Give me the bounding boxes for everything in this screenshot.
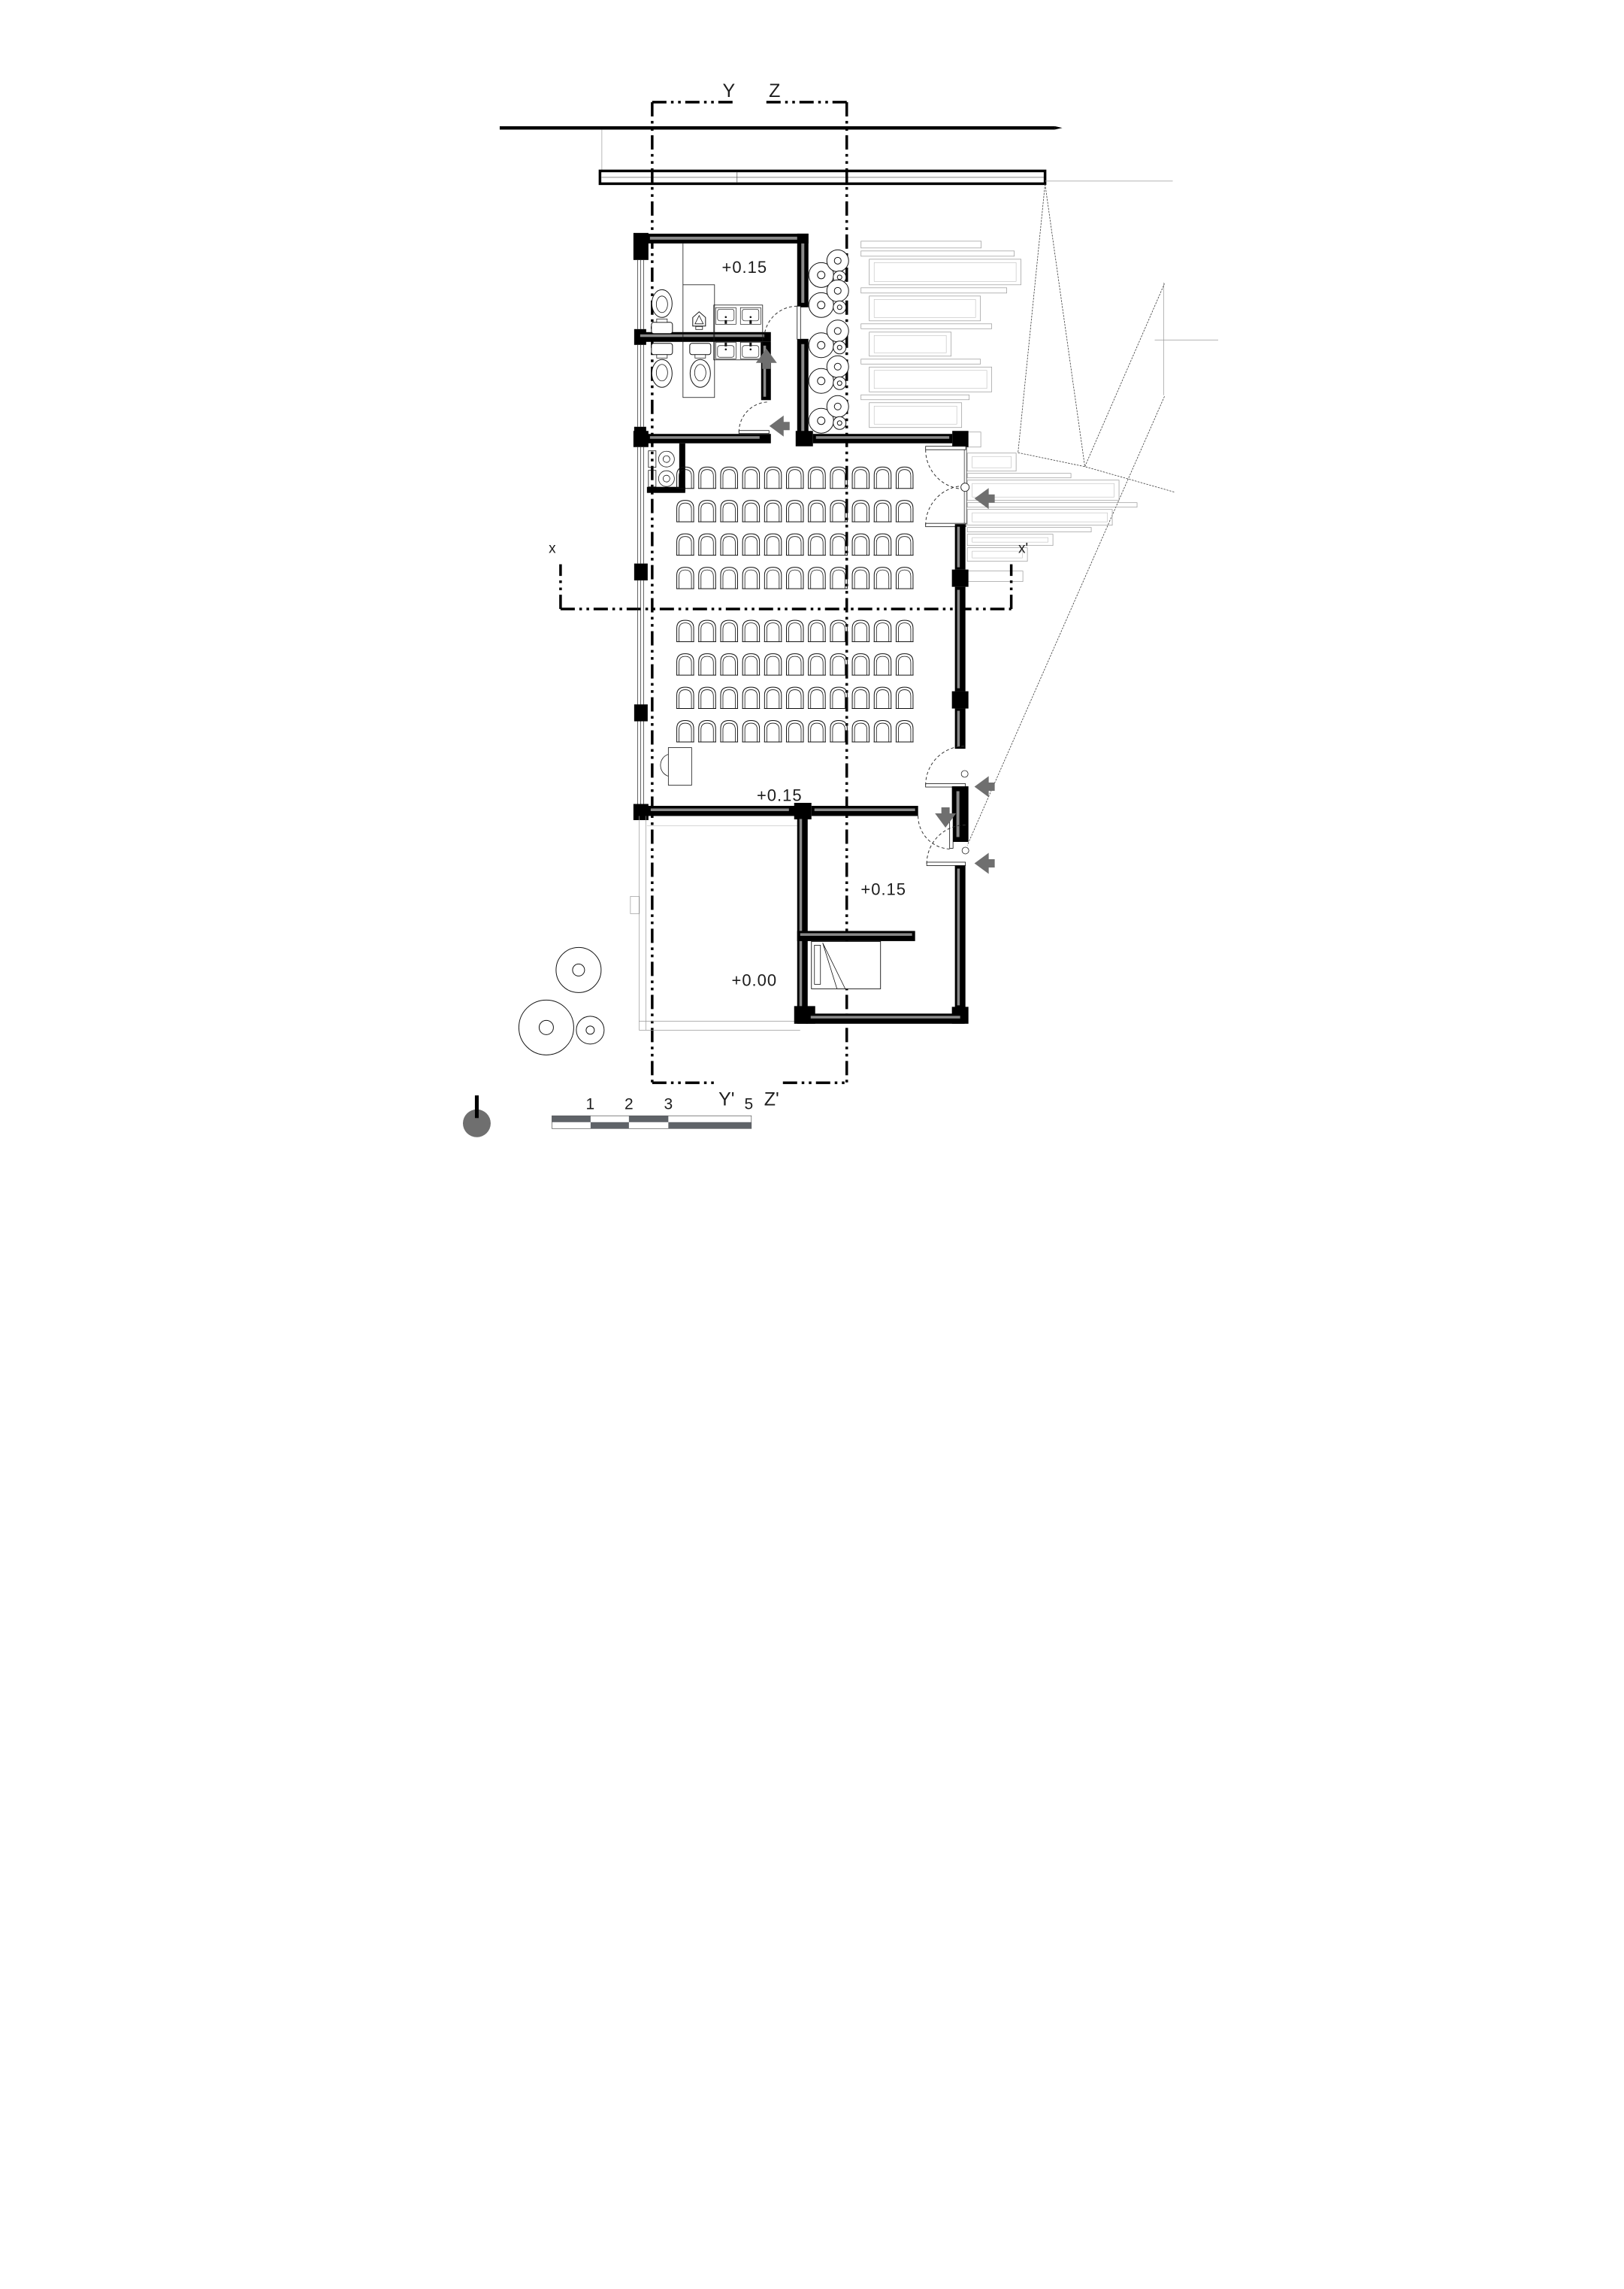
elevation-label: +0.15 (756, 786, 802, 804)
deck-board (869, 259, 1021, 285)
chair-icon (720, 721, 738, 742)
chair-icon (807, 534, 825, 555)
deck-board (967, 510, 1112, 525)
door-east-south (925, 746, 967, 787)
chair-icon (830, 534, 848, 555)
chair-icon (895, 687, 913, 708)
chair-icon (676, 568, 694, 589)
chair-icon (873, 721, 891, 742)
chair-icon (873, 501, 891, 522)
chair-icon (873, 534, 891, 555)
sink-icon (740, 342, 761, 359)
site-path-spikes (967, 184, 1175, 846)
chair-icon (698, 620, 716, 641)
chair-icon (895, 620, 913, 641)
chair-icon (873, 467, 891, 488)
deck-board (967, 503, 1137, 507)
deck-board (967, 571, 1023, 582)
scale-value: 5 (744, 1095, 753, 1113)
chair-icon (895, 467, 913, 488)
chair-icon (895, 501, 913, 522)
chair-icon (830, 501, 848, 522)
chair-icon (807, 687, 825, 708)
chair-icon (851, 687, 869, 708)
door-pivot-icon (960, 483, 969, 492)
chair-icon (720, 568, 738, 589)
entry-arrow-left-icon (769, 416, 789, 437)
deck-board (860, 251, 1014, 256)
north-arrow-icon (462, 1095, 490, 1137)
chair-icon (895, 534, 913, 555)
chair-icon (785, 687, 803, 708)
chair-icon (807, 654, 825, 675)
deck-board (860, 241, 981, 248)
chair-icon (895, 721, 913, 742)
chair-icon (676, 501, 694, 522)
scale-value: 2 (624, 1095, 634, 1113)
chair-icon (742, 568, 760, 589)
double-entrance-door (925, 447, 969, 527)
chair-icon (698, 534, 716, 555)
chair-icon (895, 654, 913, 675)
chair-icon (742, 501, 760, 522)
chair-icon (742, 654, 760, 675)
sink-icon (715, 342, 736, 359)
chair-icon (873, 687, 891, 708)
chair-icon (764, 467, 782, 488)
chair-icon (807, 568, 825, 589)
chair-icon (764, 534, 782, 555)
plan-sheet: Y Z Y' Z' x x' (407, 0, 1218, 1144)
section-label-x-prime: x' (1018, 541, 1028, 557)
toilet-block: +0.15 (633, 233, 812, 447)
lectern (660, 748, 691, 786)
chair-icon (676, 534, 694, 555)
log-stump-icons (519, 947, 603, 1055)
deck-board (860, 395, 969, 399)
timber-deck-boards (860, 241, 1136, 582)
chair-icon (830, 467, 848, 488)
chair-icon (785, 654, 803, 675)
deck-board (860, 324, 991, 329)
chair-icon (676, 687, 694, 708)
audience-seating (676, 467, 913, 742)
deck-board (967, 534, 1053, 546)
chair-icon (873, 620, 891, 641)
elevation-label: +0.00 (731, 970, 777, 989)
chair-icon (830, 721, 848, 742)
chair-icon (698, 721, 716, 742)
deck-board (860, 288, 1006, 293)
entrance-arrow-main-icon (974, 488, 994, 509)
chair-icon (764, 721, 782, 742)
chair-icon (851, 501, 869, 522)
chair-icon (742, 534, 760, 555)
chair-icon (764, 620, 782, 641)
chair-icon (807, 721, 825, 742)
terrace (630, 816, 800, 1030)
chair-icon (676, 620, 694, 641)
floor-plan-drawing: Y Z Y' Z' x x' (407, 0, 1218, 1144)
chair-icon (742, 467, 760, 488)
chair-icon (676, 654, 694, 675)
deck-board (967, 528, 1091, 532)
door-pivot-icon (962, 847, 969, 854)
sink-icon (715, 307, 736, 324)
deck-board (869, 367, 991, 392)
chair-icon (807, 501, 825, 522)
chair-icon (830, 687, 848, 708)
bed (811, 941, 880, 989)
deck-board (869, 403, 961, 428)
chair-icon (785, 620, 803, 641)
chair-icon (720, 687, 738, 708)
elevation-label: +0.15 (860, 880, 906, 898)
chair-icon (873, 654, 891, 675)
window-west (637, 447, 643, 804)
chair-icon (851, 534, 869, 555)
deck-board (860, 359, 980, 364)
urinal-icon (692, 312, 705, 329)
toilet-icon (651, 289, 672, 333)
chair-icon (851, 721, 869, 742)
south-rooms: +0.15 +0.00 (630, 816, 968, 1030)
chair-icon (851, 467, 869, 488)
chair-icon (742, 721, 760, 742)
chair-icon (895, 568, 913, 589)
elevation-label: +0.15 (721, 258, 767, 277)
section-label-y-prime: Y' (718, 1088, 734, 1110)
chair-icon (764, 654, 782, 675)
chair-icon (785, 467, 803, 488)
chair-icon (785, 721, 803, 742)
chair-icon (785, 501, 803, 522)
chair-icon (785, 534, 803, 555)
scale-value: 1 (585, 1095, 594, 1113)
toilet-icon (651, 344, 672, 387)
hall: +0.15 (633, 431, 969, 849)
chair-icon (742, 687, 760, 708)
scale-value: 3 (664, 1095, 673, 1113)
chair-icon (830, 654, 848, 675)
chair-icon (764, 568, 782, 589)
door-pivot-icon (961, 771, 968, 777)
chair-icon (698, 501, 716, 522)
log-stack-icons (809, 250, 848, 433)
sink-icon (740, 307, 761, 324)
site-boundary-lines (499, 126, 1217, 395)
chair-icon (720, 534, 738, 555)
chair-icon (830, 568, 848, 589)
chair-icon (764, 501, 782, 522)
chair-icon (873, 568, 891, 589)
chair-icon (720, 501, 738, 522)
entrance-arrow-east-icon (974, 777, 994, 798)
chair-icon (720, 467, 738, 488)
chair-icon (807, 620, 825, 641)
chair-icon (698, 467, 716, 488)
chair-icon (851, 654, 869, 675)
chair-icon (807, 467, 825, 488)
chair-icon (785, 568, 803, 589)
chair-icon (830, 620, 848, 641)
chair-icon (764, 687, 782, 708)
chair-icon (698, 687, 716, 708)
section-label-x: x (549, 541, 556, 557)
section-label-y: Y (722, 80, 735, 101)
chair-icon (698, 654, 716, 675)
deck-board (967, 474, 1071, 478)
chair-icon (698, 568, 716, 589)
chair-icon (742, 620, 760, 641)
chair-icon (851, 620, 869, 641)
section-label-z-prime: Z' (764, 1088, 779, 1110)
deck-board (869, 296, 980, 321)
deck-board (967, 432, 981, 447)
deck-board (967, 453, 1016, 471)
chair-icon (851, 568, 869, 589)
chair-icon (720, 620, 738, 641)
chair-icon (676, 721, 694, 742)
entrance-arrow-east2-icon (974, 852, 994, 874)
section-label-z: Z (769, 80, 780, 101)
toilet-icon (689, 344, 710, 387)
chair-icon (720, 654, 738, 675)
